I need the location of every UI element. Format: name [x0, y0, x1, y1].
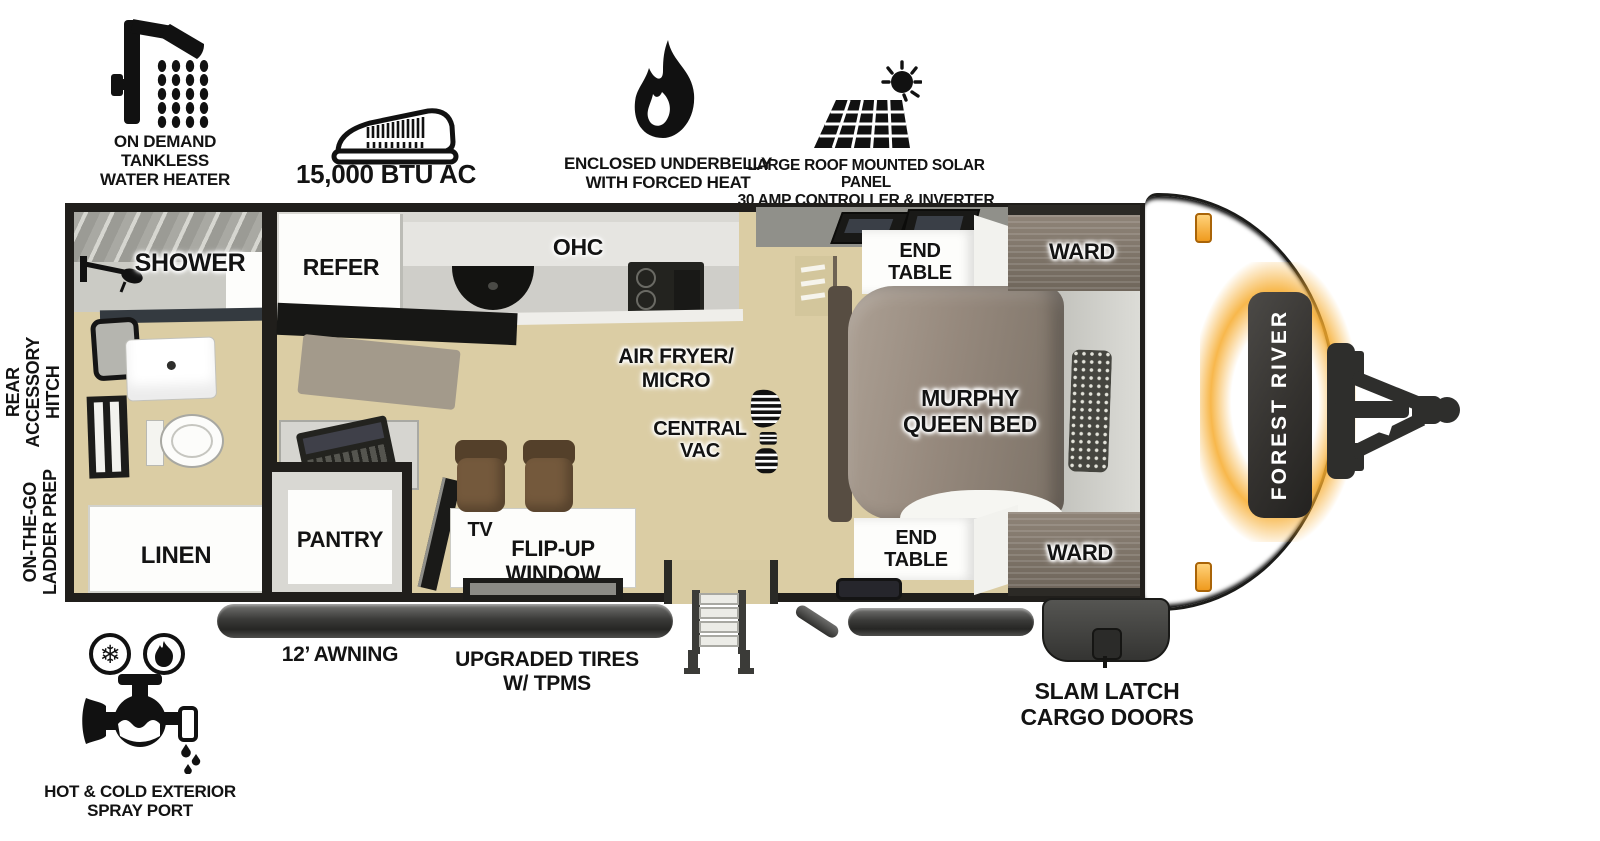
stool [455, 440, 507, 512]
ward-bottom-label: WARD [1020, 541, 1140, 566]
pantry-label: PANTRY [280, 528, 400, 553]
ward-top-label: WARD [1022, 240, 1142, 265]
cargo-door [1042, 598, 1170, 662]
speaker-mesh [1068, 349, 1112, 472]
awning-tube [217, 604, 673, 638]
end-table-bottom-label: END TABLE [856, 527, 976, 572]
tongue-hitch [1320, 335, 1462, 495]
bath-sink [125, 336, 217, 401]
entry-step-well [836, 578, 902, 600]
cargo-doors-label: SLAM LATCH CARGO DOORS [1007, 679, 1207, 731]
svg-text:❄: ❄ [100, 640, 121, 669]
boot-print-icon [748, 388, 784, 476]
ac-label: 15,000 BTU AC [286, 160, 486, 189]
floorplan-page: ON DEMAND TANKLESS WATER HEATER 15,000 B… [0, 0, 1600, 841]
spray-port-label: HOT & COLD EXTERIOR SPRAY PORT [40, 782, 240, 820]
marker-light [1195, 562, 1212, 592]
brand-badge-text: FOREST RIVER [1268, 309, 1292, 500]
toilet [160, 414, 224, 468]
ohc-label: OHC [518, 235, 638, 261]
tires-label: UPGRADED TIRES W/ TPMS [447, 648, 647, 695]
brand-badge: FOREST RIVER [1248, 292, 1312, 518]
awning-tube [848, 608, 1034, 636]
bath-window [87, 395, 130, 478]
ladder-prep-label: ON-THE-GO LADDER PREP [20, 446, 60, 618]
flame-icon [616, 38, 714, 150]
central-vac-label: CENTRAL VAC [640, 418, 760, 463]
faucet-icon: ❄ [82, 632, 202, 774]
water-heater-label: ON DEMAND TANKLESS WATER HEATER [60, 132, 270, 189]
awning-label: 12’ AWNING [240, 643, 440, 667]
entry-steps [678, 590, 762, 678]
shower-label: SHOWER [120, 249, 260, 277]
solar-panel-icon [806, 60, 922, 158]
flip-up-window-exterior [463, 578, 623, 600]
marker-light [1195, 213, 1212, 243]
refer-label: REFER [281, 255, 401, 281]
end-table-top-label: END TABLE [860, 240, 980, 285]
stove [628, 262, 704, 316]
murphy-bed-label: MURPHY QUEEN BED [880, 386, 1060, 438]
rooftop-ac-icon [326, 96, 462, 166]
grab-handle [793, 603, 840, 640]
linen-label: LINEN [106, 543, 246, 570]
air-fryer-label: AIR FRYER/ MICRO [596, 345, 756, 392]
shower-icon [106, 16, 222, 132]
stool [523, 440, 575, 512]
